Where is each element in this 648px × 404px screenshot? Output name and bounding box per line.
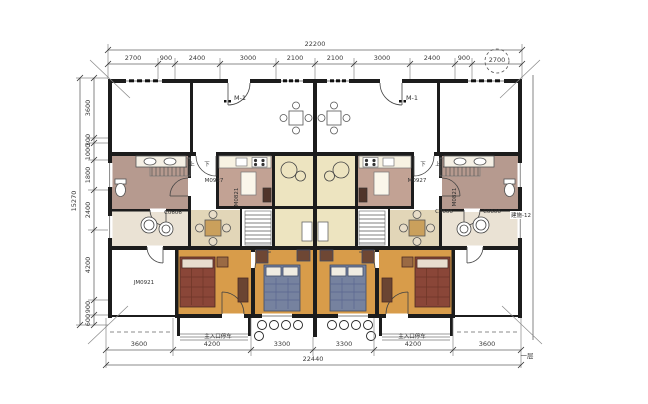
door-label-m0927-left: M0927 <box>205 178 224 184</box>
window-label-c0606-right-a: C0606 <box>435 209 453 215</box>
dim-top-9: 900 <box>458 54 470 62</box>
dim-left-1: 3600 <box>84 100 92 117</box>
dim-left-3: 1000 <box>84 144 92 161</box>
entrance-label-right: 主入口停车 <box>398 332 426 340</box>
stair-up-label-left: 上 <box>189 160 195 168</box>
stair-up-label-right: 上 <box>435 160 441 168</box>
floor-note: 一层 <box>521 350 534 360</box>
dim-top-6: 2100 <box>327 54 344 62</box>
door-label-m0927-right: M0927 <box>408 178 427 184</box>
entrance-label-left: 主入口停车 <box>204 332 232 340</box>
dim-bottom-2: 4200 <box>204 340 221 348</box>
door-label-jm0921: JM0921 <box>134 280 154 286</box>
dim-bottom-6: 3600 <box>479 340 496 348</box>
door-label-m0821-left: M0821 <box>234 188 240 207</box>
dim-top-5: 2100 <box>287 54 304 62</box>
dim-bottom-total: 22440 <box>303 355 324 363</box>
floor-plan-drawing <box>0 0 648 404</box>
door-label-m0821-right: M0821 <box>452 188 458 207</box>
dim-left-5: 2400 <box>84 202 92 219</box>
window-label-c0606-left: C0606 <box>164 210 182 216</box>
dim-top-total: 22200 <box>305 40 326 48</box>
dim-top-2: 900 <box>160 54 172 62</box>
dim-top-4: 3000 <box>240 54 257 62</box>
dim-left-8: 600 <box>84 314 92 326</box>
dim-top-10-circled: 2700 <box>489 56 506 64</box>
dim-bottom-1: 3600 <box>131 340 148 348</box>
door-label-m1-right: M-1 <box>406 94 418 102</box>
floor-plan-sheet: 22200 2700 900 2400 3000 2100 2100 3000 … <box>0 0 648 404</box>
dim-left-6: 4200 <box>84 257 92 274</box>
dim-top-3: 2400 <box>189 54 206 62</box>
sheet-note: 建施-12 <box>510 211 532 219</box>
stair-down-label-left: 下 <box>204 160 210 168</box>
dim-left-7: 900 <box>84 301 92 313</box>
window-label-c0606-right-b: C0606 <box>483 209 501 215</box>
stair-down-label-right: 下 <box>420 160 426 168</box>
door-label-m1-left: M-1 <box>234 94 246 102</box>
dim-bottom-4: 3300 <box>336 340 353 348</box>
dim-bottom-5: 4200 <box>405 340 422 348</box>
dim-top-7: 3000 <box>374 54 391 62</box>
dim-top-1: 2700 <box>125 54 142 62</box>
dim-left-total: 15270 <box>70 191 78 212</box>
dim-left-4: 1800 <box>84 167 92 184</box>
dim-top-8: 2400 <box>424 54 441 62</box>
dim-bottom-3: 3300 <box>274 340 291 348</box>
